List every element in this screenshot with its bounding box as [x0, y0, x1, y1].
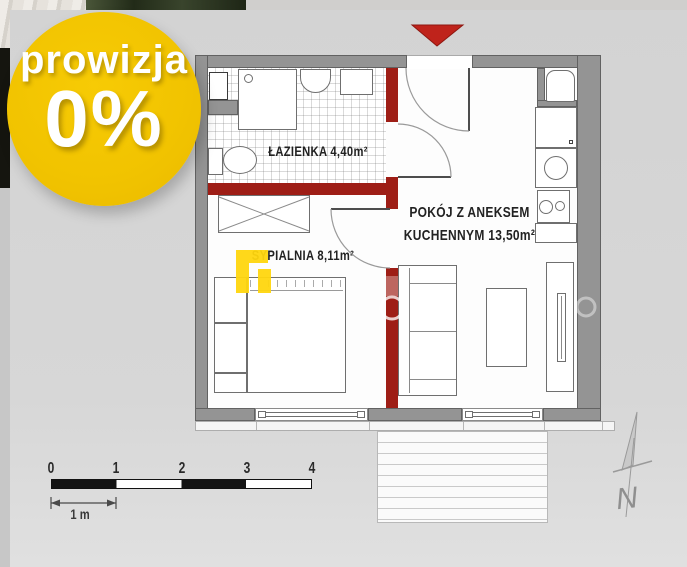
commission-badge: prowizja 0% — [7, 12, 201, 206]
exterior-wall-bottom — [195, 408, 255, 421]
sill-divider — [369, 422, 370, 430]
sofa-armrest-line — [410, 283, 456, 284]
scale-tick: 1 — [113, 460, 120, 478]
badge-percentage: 0% — [44, 81, 164, 157]
toilet-bowl — [223, 146, 257, 174]
partition-wall-segment — [386, 68, 398, 122]
terrace-steps — [377, 431, 548, 523]
sill-divider — [463, 422, 464, 430]
partition-wall-bathroom-bedroom — [208, 183, 386, 195]
agency-logo-watermark — [258, 269, 271, 293]
sofa-cushion-line — [410, 331, 456, 332]
window-cap — [532, 411, 540, 418]
bathroom-label: ŁAZIENKA 4,40m² — [254, 143, 382, 159]
burner-small — [555, 201, 565, 211]
kitchen-counter — [535, 223, 577, 243]
radiator — [209, 72, 228, 100]
scale-tick: 2 — [179, 460, 186, 478]
window-sill-band — [195, 421, 615, 431]
exterior-wall-bottom — [543, 408, 601, 421]
agency-logo-watermark — [236, 250, 249, 293]
exterior-wall-top — [195, 55, 407, 68]
bathroom-alcove-wall — [208, 100, 238, 115]
coffee-table — [486, 288, 527, 367]
counter-handle — [569, 140, 573, 144]
sink-basin — [544, 156, 568, 180]
scale-tick: 0 — [48, 460, 55, 478]
sill-divider — [602, 422, 603, 430]
exterior-wall-right — [577, 55, 601, 421]
cabinet-shelf-line — [561, 296, 562, 359]
fridge — [546, 70, 575, 102]
window-pane — [469, 412, 536, 417]
living-room-label-line2: KUCHENNYM 13,50m² — [400, 227, 540, 244]
window-cap — [357, 411, 365, 418]
scale-tick: 4 — [309, 460, 316, 478]
scale-bar — [51, 479, 312, 489]
sill-divider — [544, 422, 545, 430]
window-symbol — [255, 408, 368, 421]
partition-wall-segment — [386, 177, 398, 209]
agency-logo-watermark — [249, 250, 268, 263]
bed — [247, 277, 346, 393]
burner-large — [539, 200, 553, 214]
exterior-wall-bottom — [368, 408, 462, 421]
wardrobe — [218, 195, 310, 233]
shower-drain — [244, 74, 253, 83]
watermark-highlight — [386, 276, 398, 296]
floorplan-image: ŁAZIENKA 4,40m² SYPIALNIA 8,11m² POKÓJ Z… — [0, 0, 687, 567]
dresser — [214, 323, 247, 373]
window-cap — [465, 411, 473, 418]
nightstand — [214, 373, 247, 393]
window-pane — [262, 412, 361, 417]
washing-machine — [340, 69, 373, 95]
entrance-opening — [407, 55, 472, 69]
toilet-tank — [208, 148, 223, 175]
window-symbol — [462, 408, 543, 421]
scale-tick: 3 — [244, 460, 251, 478]
scale-unit-label: 1 m — [70, 506, 89, 522]
living-room-label-line1: POKÓJ Z ANEKSEM — [408, 204, 532, 221]
sofa-armrest-line — [410, 379, 456, 380]
window-cap — [258, 411, 266, 418]
sill-divider — [256, 422, 257, 430]
